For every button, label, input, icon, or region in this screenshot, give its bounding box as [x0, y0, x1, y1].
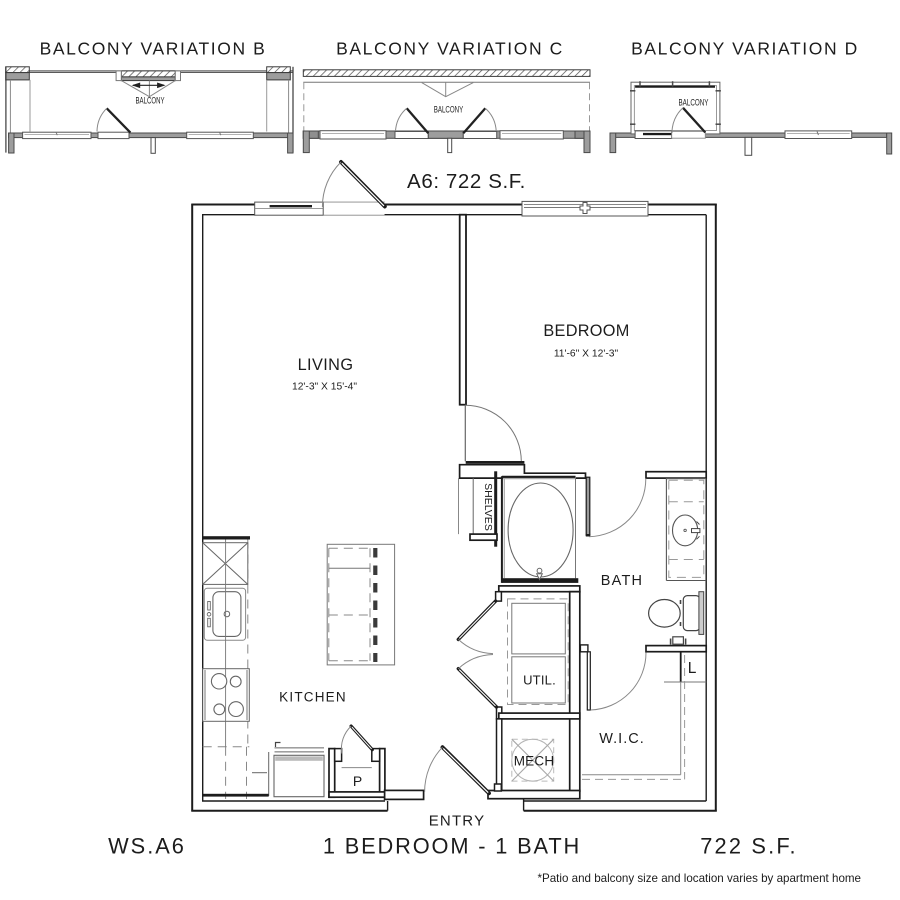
svg-text:BALCONY VARIATION C: BALCONY VARIATION C: [336, 39, 564, 59]
svg-text:KITCHEN: KITCHEN: [279, 690, 347, 705]
svg-text:722 S.F.: 722 S.F.: [700, 834, 798, 859]
svg-text:P: P: [353, 773, 362, 789]
svg-text:BALCONY VARIATION D: BALCONY VARIATION D: [631, 39, 859, 59]
svg-text:BEDROOM: BEDROOM: [543, 322, 629, 340]
svg-text:11'-6" X 12'-3": 11'-6" X 12'-3": [554, 349, 619, 360]
svg-text:MECH: MECH: [514, 754, 555, 769]
svg-text:UTIL.: UTIL.: [523, 673, 556, 688]
svg-text:*Patio and balcony size and lo: *Patio and balcony size and location var…: [537, 872, 861, 885]
svg-text:A6: 722 S.F.: A6: 722 S.F.: [407, 170, 526, 193]
svg-text:BATH: BATH: [601, 573, 643, 589]
svg-text:ENTRY: ENTRY: [429, 813, 486, 830]
svg-text:WS.A6: WS.A6: [108, 834, 186, 859]
svg-text:BALCONY: BALCONY: [136, 96, 165, 106]
svg-text:BALCONY: BALCONY: [434, 105, 464, 115]
svg-text:W.I.C.: W.I.C.: [599, 731, 644, 747]
svg-text:BALCONY VARIATION B: BALCONY VARIATION B: [40, 39, 267, 59]
svg-text:1 BEDROOM - 1 BATH: 1 BEDROOM - 1 BATH: [323, 834, 581, 859]
svg-text:BALCONY: BALCONY: [679, 98, 709, 108]
svg-text:LIVING: LIVING: [298, 356, 354, 374]
svg-text:L: L: [688, 660, 697, 677]
svg-text:SHELVES: SHELVES: [482, 483, 494, 531]
svg-text:12'-3" X 15'-4": 12'-3" X 15'-4": [292, 382, 357, 393]
